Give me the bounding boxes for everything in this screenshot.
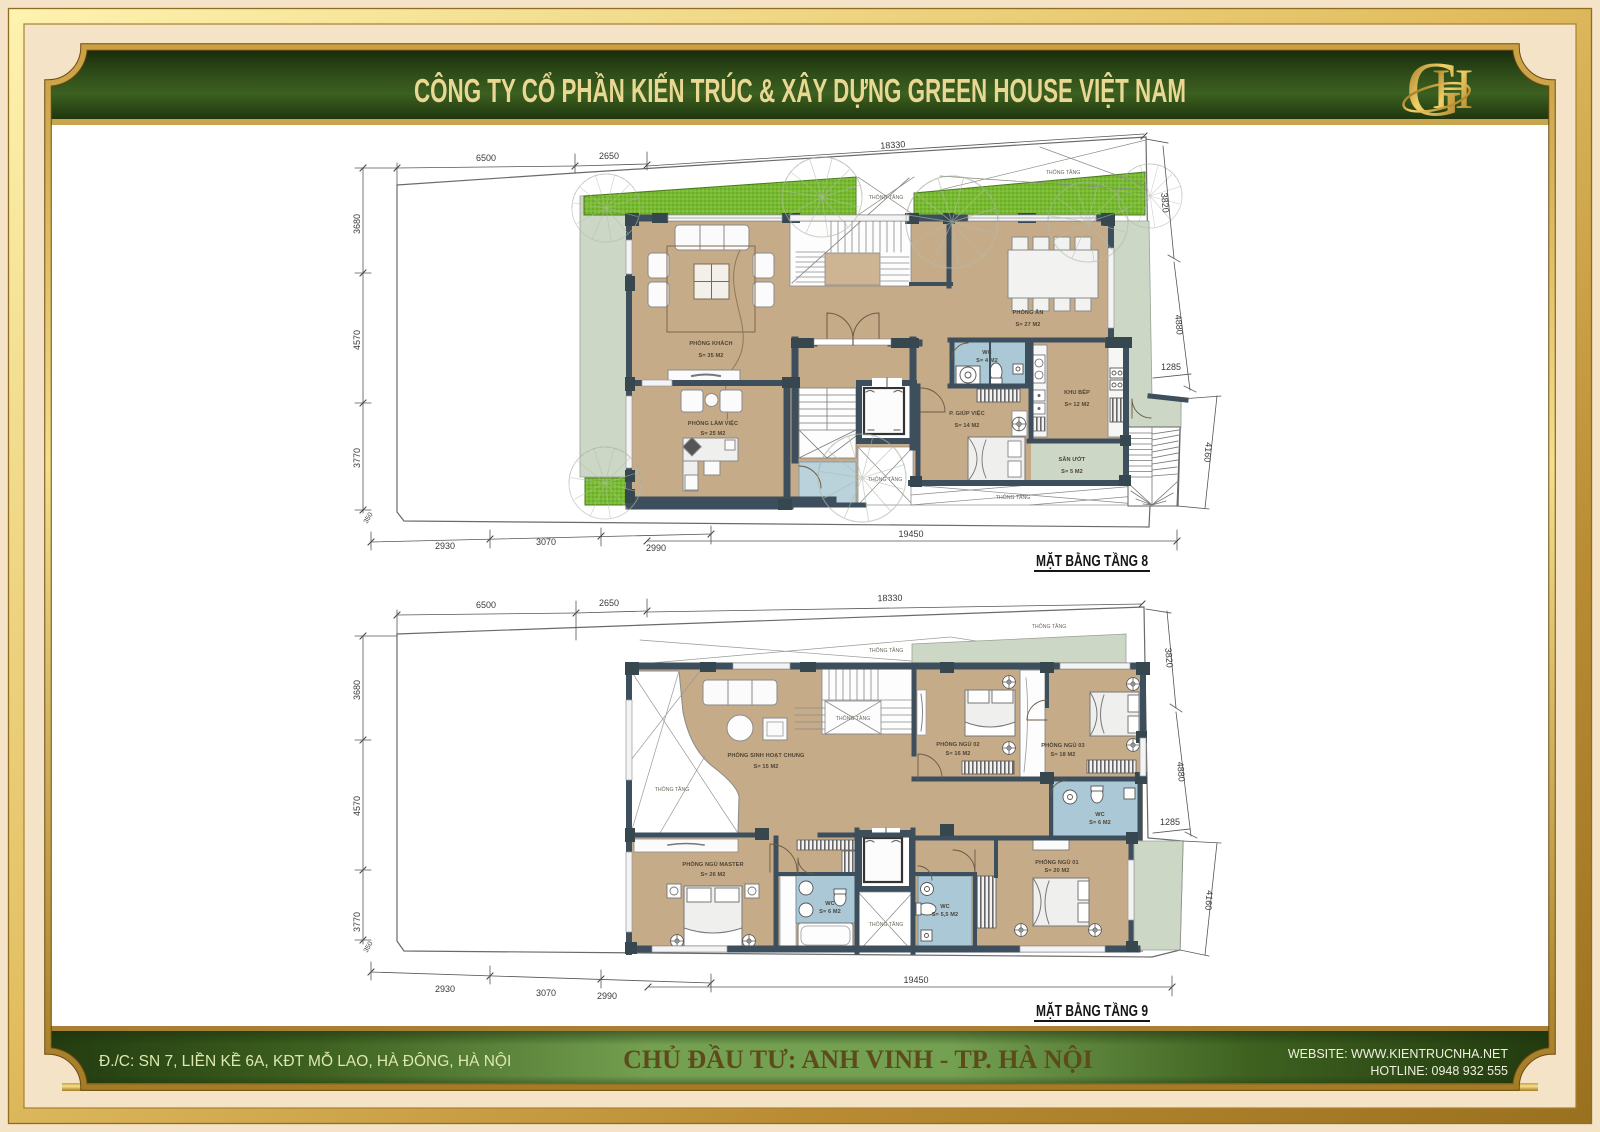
- svg-text:THÔNG TẦNG: THÔNG TẦNG: [869, 647, 904, 654]
- svg-text:3680: 3680: [352, 214, 362, 234]
- svg-text:PHÒNG SINH HOẠT CHUNG: PHÒNG SINH HOẠT CHUNG: [728, 751, 805, 759]
- svg-text:H: H: [1432, 58, 1473, 121]
- svg-text:3680: 3680: [352, 680, 362, 700]
- svg-text:2990: 2990: [597, 991, 617, 1001]
- svg-text:S= 6 M2: S= 6 M2: [1089, 820, 1111, 826]
- svg-text:S= 4 M2: S= 4 M2: [976, 358, 998, 364]
- svg-text:S= 18 M2: S= 18 M2: [1051, 752, 1076, 758]
- svg-text:4570: 4570: [352, 796, 362, 816]
- svg-text:THÔNG TẦNG: THÔNG TẦNG: [655, 786, 690, 793]
- svg-text:18330: 18330: [877, 593, 902, 603]
- svg-text:THÔNG TẦNG: THÔNG TẦNG: [869, 194, 904, 201]
- svg-text:S= 12 M2: S= 12 M2: [1065, 402, 1090, 408]
- svg-text:SÂN ƯỚT: SÂN ƯỚT: [1059, 455, 1086, 463]
- svg-text:S= 5 M2: S= 5 M2: [1061, 469, 1083, 475]
- svg-text:4160: 4160: [1203, 890, 1215, 911]
- svg-text:3820: 3820: [1159, 192, 1171, 213]
- svg-text:19450: 19450: [903, 975, 928, 985]
- svg-text:4880: 4880: [1175, 761, 1187, 782]
- svg-text:Đ./C: SN 7, LIỀN KỀ 6A, KĐT MỖ: Đ./C: SN 7, LIỀN KỀ 6A, KĐT MỖ LAO, HÀ Đ…: [99, 1052, 511, 1070]
- svg-text:THÔNG TẦNG: THÔNG TẦNG: [1032, 623, 1067, 630]
- svg-text:MẶT BẰNG TẦNG 8: MẶT BẰNG TẦNG 8: [1036, 551, 1148, 570]
- svg-text:2650: 2650: [599, 598, 619, 608]
- svg-text:S= 27 M2: S= 27 M2: [1016, 322, 1041, 328]
- svg-text:THÔNG TẦNG: THÔNG TẦNG: [1046, 169, 1081, 176]
- svg-text:S= 16 M2: S= 16 M2: [946, 751, 971, 757]
- svg-text:4880: 4880: [1173, 314, 1185, 335]
- svg-text:4570: 4570: [352, 330, 362, 350]
- svg-text:THÔNG TẦNG: THÔNG TẦNG: [869, 921, 904, 928]
- svg-text:3070: 3070: [536, 537, 556, 547]
- svg-text:PHÒNG KHÁCH: PHÒNG KHÁCH: [689, 339, 732, 347]
- svg-text:S= 6 M2: S= 6 M2: [819, 909, 841, 915]
- svg-text:P. GIÚP VIỆC: P. GIÚP VIỆC: [949, 409, 985, 417]
- svg-text:S= 35 M2: S= 35 M2: [699, 353, 724, 359]
- svg-text:WC: WC: [940, 904, 950, 910]
- svg-text:2650: 2650: [599, 151, 619, 161]
- svg-text:3070: 3070: [536, 988, 556, 998]
- svg-text:S= 5,5 M2: S= 5,5 M2: [932, 912, 959, 918]
- svg-text:WC: WC: [825, 901, 835, 907]
- svg-text:3770: 3770: [352, 448, 362, 468]
- svg-text:CÔNG TY CỔ PHẦN KIẾN TRÚC & XÂ: CÔNG TY CỔ PHẦN KIẾN TRÚC & XÂY DỰNG GRE…: [414, 71, 1186, 109]
- svg-text:4160: 4160: [1202, 442, 1214, 463]
- svg-text:6500: 6500: [476, 600, 496, 610]
- svg-text:PHÒNG NGỦ MASTER: PHÒNG NGỦ MASTER: [682, 860, 743, 868]
- svg-text:3770: 3770: [352, 912, 362, 932]
- svg-text:S= 14 M2: S= 14 M2: [955, 423, 980, 429]
- svg-text:PHÒNG NGỦ 01: PHÒNG NGỦ 01: [1035, 858, 1078, 866]
- svg-text:3820: 3820: [1163, 647, 1175, 668]
- svg-text:PHÒNG NGỦ 03: PHÒNG NGỦ 03: [1041, 741, 1084, 749]
- svg-text:6500: 6500: [476, 153, 496, 163]
- svg-text:1285: 1285: [1160, 817, 1180, 827]
- svg-text:S= 25 M2: S= 25 M2: [701, 431, 726, 437]
- svg-text:MẶT BẰNG TẦNG 9: MẶT BẰNG TẦNG 9: [1036, 1001, 1148, 1020]
- svg-text:S= 26 M2: S= 26 M2: [701, 872, 726, 878]
- svg-text:2990: 2990: [646, 543, 666, 553]
- svg-text:18330: 18330: [880, 139, 906, 151]
- svg-text:KHU BẾP: KHU BẾP: [1064, 389, 1090, 396]
- svg-text:S= 20 M2: S= 20 M2: [1045, 868, 1070, 874]
- svg-text:PHÒNG ĂN: PHÒNG ĂN: [1013, 308, 1044, 316]
- svg-text:19450: 19450: [898, 529, 923, 539]
- svg-text:WC: WC: [1095, 812, 1105, 818]
- svg-text:THÔNG TẦNG: THÔNG TẦNG: [996, 494, 1031, 501]
- svg-text:2930: 2930: [435, 984, 455, 994]
- svg-text:HOTLINE: 0948 932 555: HOTLINE: 0948 932 555: [1370, 1064, 1508, 1078]
- svg-text:PHÒNG LÀM VIỆC: PHÒNG LÀM VIỆC: [688, 419, 738, 427]
- svg-text:PHÒNG NGỦ 02: PHÒNG NGỦ 02: [936, 740, 979, 748]
- svg-text:S= 15 M2: S= 15 M2: [754, 764, 779, 770]
- svg-text:THÔNG TẦNG: THÔNG TẦNG: [836, 715, 871, 722]
- svg-text:WEBSITE: WWW.KIENTRUCNHA.NET: WEBSITE: WWW.KIENTRUCNHA.NET: [1288, 1047, 1509, 1061]
- svg-text:2930: 2930: [435, 541, 455, 551]
- svg-text:THÔNG TẦNG: THÔNG TẦNG: [868, 476, 903, 483]
- svg-text:CHỦ ĐẦU TƯ: ANH VINH - TP. HÀ: CHỦ ĐẦU TƯ: ANH VINH - TP. HÀ NỘI: [623, 1045, 1093, 1074]
- svg-text:1285: 1285: [1161, 362, 1181, 372]
